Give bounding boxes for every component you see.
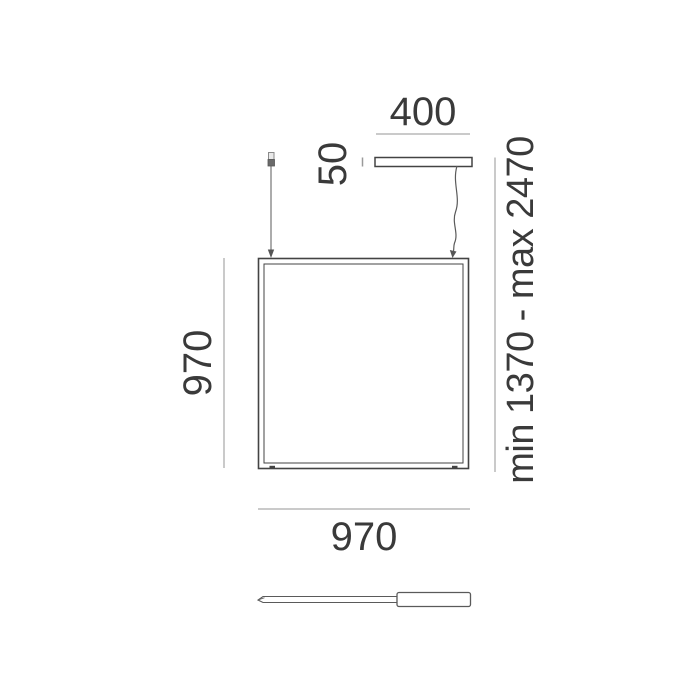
power-cable-arrow [450, 250, 457, 258]
label-canopy-height: 50 [313, 142, 353, 187]
label-suspension-range: min 1370 - max 2470 [502, 136, 540, 483]
suspension-ceiling-fitting [269, 153, 275, 160]
label-panel-height: 970 [178, 330, 218, 397]
label-panel-width: 970 [331, 517, 398, 557]
power-cable [454, 166, 458, 251]
tool-handle [397, 593, 471, 607]
panel-bottom-mount-right [452, 466, 458, 469]
label-canopy-width: 400 [390, 92, 457, 132]
suspension-cable-left-arrow [268, 250, 274, 259]
tool-shaft [258, 597, 397, 603]
lamp-panel-outer-frame [259, 259, 469, 469]
panel-bottom-mount-left [270, 466, 276, 469]
suspension-fitting-cap [268, 160, 275, 167]
ceiling-canopy [375, 158, 472, 167]
drawing-svg [0, 0, 700, 700]
dimension-drawing: 400 50 970 970 min 1370 - max 2470 [0, 0, 700, 700]
